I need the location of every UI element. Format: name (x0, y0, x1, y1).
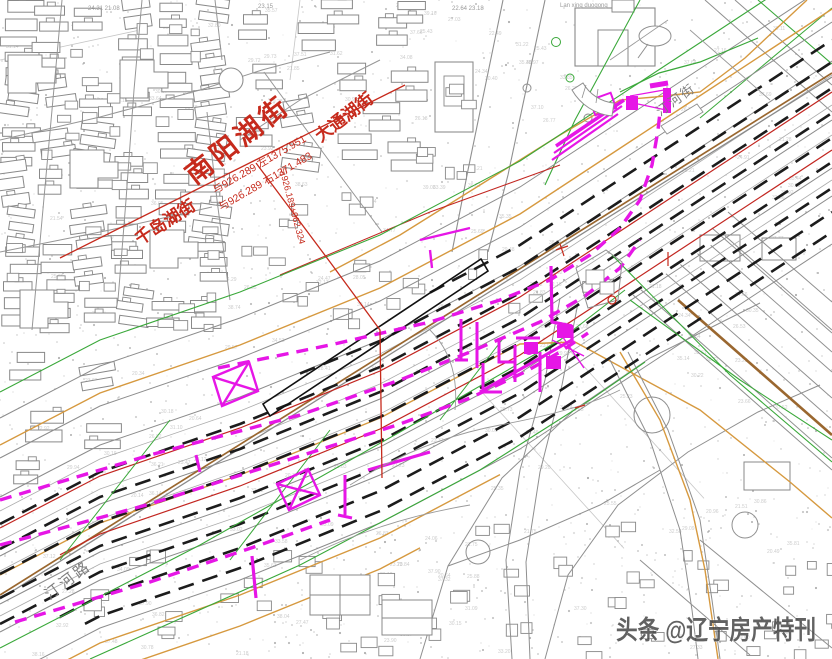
svg-text:头条 @辽宁房产特刊: 头条 @辽宁房产特刊 (616, 615, 816, 645)
svg-text:24.31 21.08: 24.31 21.08 (88, 6, 120, 12)
svg-text:21.18: 21.18 (236, 651, 249, 657)
svg-text:37.30: 37.30 (574, 606, 587, 612)
svg-text:30.86: 30.86 (754, 499, 767, 505)
svg-text:35.81: 35.81 (787, 541, 800, 547)
svg-text:38.16: 38.16 (32, 652, 45, 658)
svg-text:33.39: 33.39 (433, 185, 446, 191)
svg-text:30.18: 30.18 (161, 409, 174, 415)
svg-text:36.21: 36.21 (151, 462, 164, 468)
svg-text:25.23: 25.23 (620, 394, 633, 400)
svg-text:22.64 23.18: 22.64 23.18 (452, 6, 484, 12)
svg-text:Lan xing duogong: Lan xing duogong (560, 3, 608, 9)
svg-text:33.20: 33.20 (498, 649, 511, 655)
svg-text:24.47: 24.47 (318, 276, 331, 282)
svg-text:23.66: 23.66 (738, 399, 751, 405)
svg-text:20.14: 20.14 (131, 493, 144, 499)
svg-text:23.90: 23.90 (384, 638, 397, 644)
svg-text:34.08: 34.08 (400, 55, 413, 61)
svg-text:25.35: 25.35 (491, 486, 504, 492)
svg-text:32.80: 32.80 (208, 23, 221, 29)
svg-text:21.85: 21.85 (287, 66, 300, 72)
svg-text:31.22: 31.22 (516, 42, 529, 48)
svg-text:37.69: 37.69 (759, 92, 772, 98)
svg-text:20.96: 20.96 (706, 509, 719, 515)
svg-text:30.15: 30.15 (449, 621, 462, 627)
svg-text:30.78: 30.78 (141, 645, 154, 651)
svg-text:24.34: 24.34 (678, 313, 691, 319)
svg-text:36.82: 36.82 (152, 612, 165, 618)
svg-text:38.63: 38.63 (295, 182, 308, 188)
svg-text:29.73: 29.73 (264, 54, 277, 60)
svg-text:38.04: 38.04 (277, 614, 290, 620)
svg-text:27.03: 27.03 (448, 17, 461, 23)
svg-text:31.09: 31.09 (465, 606, 478, 612)
svg-text:28.05: 28.05 (353, 275, 366, 281)
svg-text:27.47: 27.47 (296, 620, 309, 626)
svg-text:38.74: 38.74 (228, 305, 241, 311)
svg-text:21.54: 21.54 (50, 216, 63, 222)
svg-text:31.62: 31.62 (330, 51, 343, 57)
svg-text:39.16: 39.16 (424, 11, 437, 17)
svg-text:29.72: 29.72 (248, 58, 261, 64)
svg-text:21.51: 21.51 (735, 504, 748, 510)
svg-text:25.43: 25.43 (420, 29, 433, 35)
svg-text:25.88: 25.88 (467, 574, 480, 580)
svg-text:35.14: 35.14 (677, 356, 690, 362)
svg-text:23.47: 23.47 (178, 460, 191, 466)
svg-text:20.64: 20.64 (189, 416, 202, 422)
svg-text:25.43: 25.43 (534, 46, 547, 52)
svg-text:29.09: 29.09 (682, 526, 695, 532)
svg-text:23.15: 23.15 (258, 4, 274, 10)
svg-text:32.92: 32.92 (56, 623, 69, 629)
svg-text:26.53: 26.53 (733, 324, 746, 330)
svg-text:37.10: 37.10 (531, 105, 544, 111)
svg-text:26.13: 26.13 (415, 116, 428, 122)
svg-text:31.10: 31.10 (170, 425, 183, 431)
svg-text:37.12: 37.12 (43, 554, 56, 560)
svg-text:24.06: 24.06 (425, 536, 438, 542)
svg-text:20.34: 20.34 (132, 371, 145, 377)
svg-text:26.77: 26.77 (543, 118, 556, 124)
svg-text:37.51: 37.51 (294, 52, 307, 58)
svg-text:30.22: 30.22 (691, 373, 704, 379)
svg-text:33.58: 33.58 (275, 539, 288, 545)
svg-text:24.34: 24.34 (475, 69, 488, 75)
svg-text:20.49: 20.49 (767, 549, 780, 555)
